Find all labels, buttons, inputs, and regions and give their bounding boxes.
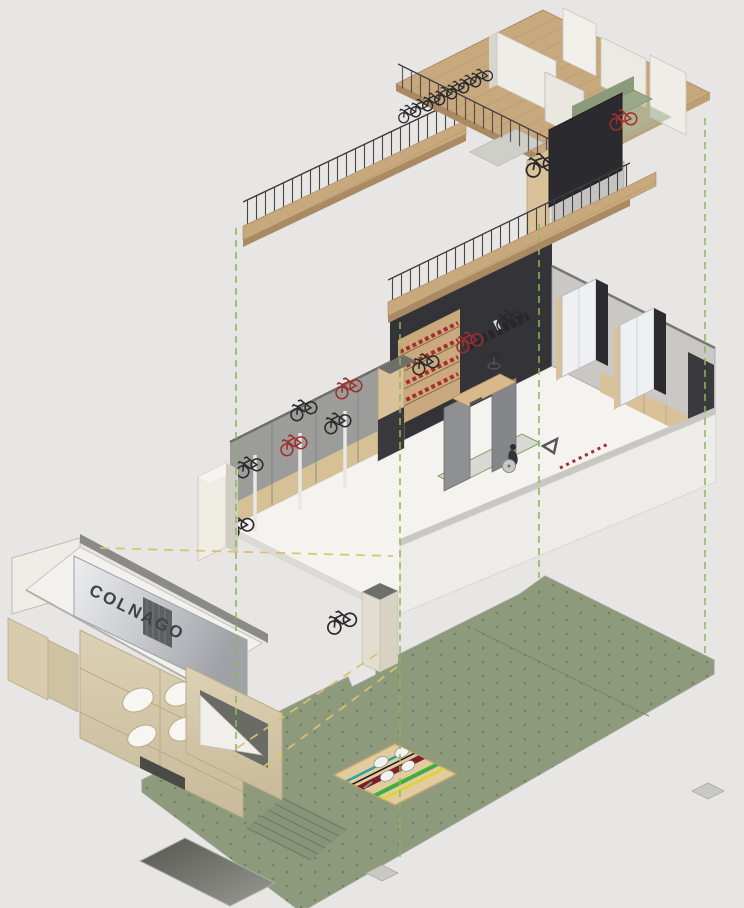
station-panel — [444, 395, 470, 491]
exploded-axonometric-view: COLNAGO — [0, 0, 744, 908]
technician-head — [510, 444, 516, 450]
render-canvas: COLNAGO — [0, 0, 744, 908]
end-column — [198, 463, 238, 561]
entrance-column — [362, 583, 398, 672]
